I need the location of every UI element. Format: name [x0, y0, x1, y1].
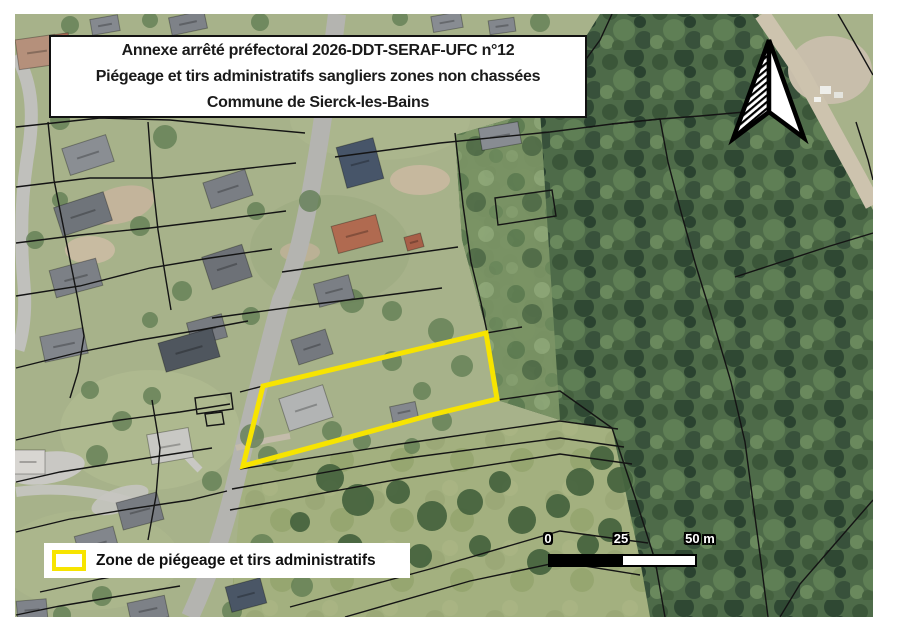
legend-label: Zone de piégeage et tirs administratifs: [96, 552, 375, 570]
scale-tick-25: 25: [614, 531, 628, 546]
map-title-box: Annexe arrêté préfectoral 2026-DDT-SERAF…: [49, 35, 587, 118]
map-title-line3: Commune de Sierck-les-Bains: [207, 90, 429, 116]
map-title-line1: Annexe arrêté préfectoral 2026-DDT-SERAF…: [122, 38, 515, 64]
map-title-line2: Piégeage et tirs administratifs sanglier…: [96, 64, 540, 90]
scale-rule: [548, 554, 697, 567]
scale-tick-0: 0: [544, 531, 551, 546]
zone-color-swatch: [52, 550, 86, 571]
scale-bar: 0 25 50 m: [537, 531, 727, 569]
scale-tick-50: 50 m: [685, 531, 715, 546]
map-page: Annexe arrêté préfectoral 2026-DDT-SERAF…: [0, 0, 900, 636]
legend: Zone de piégeage et tirs administratifs: [44, 543, 410, 578]
